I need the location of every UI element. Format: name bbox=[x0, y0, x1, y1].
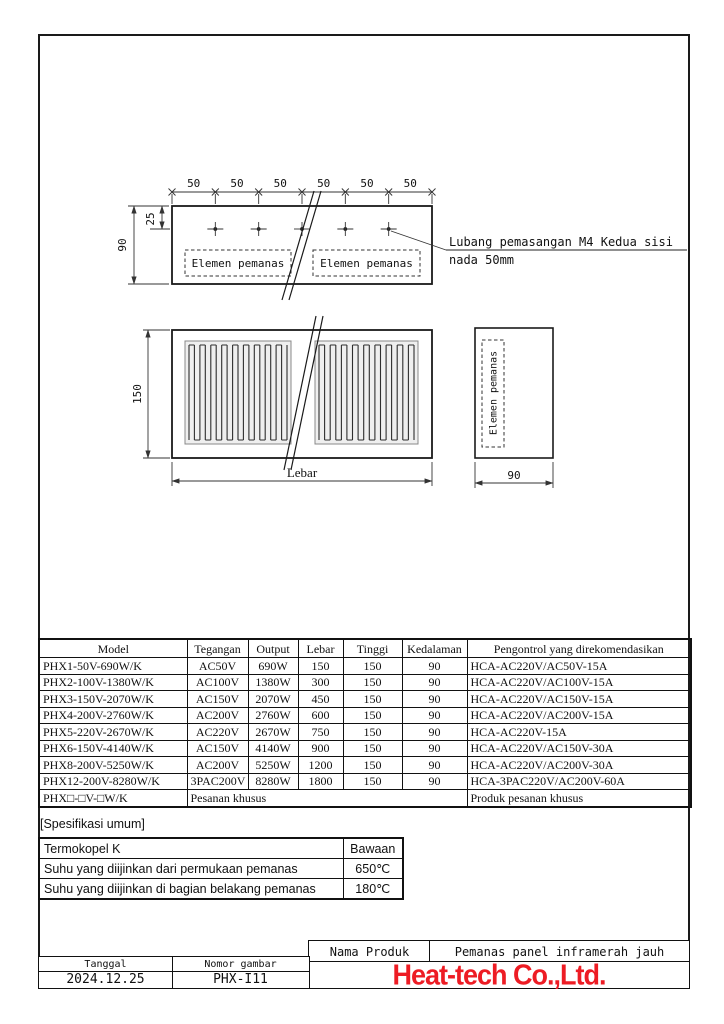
table-row: PHX1-50V-690W/KAC50V690W15015090HCA-AC22… bbox=[39, 658, 691, 675]
dim-label-90-top: 90 bbox=[116, 238, 129, 251]
table-cell: 90 bbox=[402, 691, 467, 708]
table-row: PHX5-220V-2670W/KAC220V2670W75015090HCA-… bbox=[39, 724, 691, 741]
annotation-line2: nada 50mm bbox=[449, 253, 514, 267]
table-cell: 2760W bbox=[248, 707, 298, 724]
table-cell: 8280W bbox=[248, 773, 298, 790]
spec-label: Termokopel K bbox=[39, 838, 343, 859]
column-header: Pengontrol yang direkomendasikan bbox=[467, 639, 691, 658]
table-cell: 90 bbox=[402, 757, 467, 774]
drawing-number-value: PHX-I11 bbox=[172, 971, 310, 989]
header-row: ModelTeganganOutputLebarTinggiKedalamanP… bbox=[39, 639, 691, 658]
table-cell: Produk pesanan khusus bbox=[467, 790, 691, 807]
table-cell: PHX4-200V-2760W/K bbox=[39, 707, 187, 724]
table-cell: PHX12-200V-8280W/K bbox=[39, 773, 187, 790]
table-cell: HCA-AC220V-15A bbox=[467, 724, 691, 741]
dim-label-50: 50 bbox=[404, 177, 417, 190]
table-cell: 300 bbox=[298, 674, 343, 691]
spec-row: Suhu yang diijinkan dari permukaan peman… bbox=[39, 859, 403, 879]
company-logo: Heat-tech Co.,Ltd. bbox=[308, 961, 690, 989]
table-row: PHX8-200V-5250W/KAC200V5250W120015090HCA… bbox=[39, 757, 691, 774]
datasheet-page: 50 50 50 50 50 50 25 90 Elemen pemanas E… bbox=[0, 0, 724, 1024]
table-cell: 1380W bbox=[248, 674, 298, 691]
column-header: Lebar bbox=[298, 639, 343, 658]
dim-label-50: 50 bbox=[317, 177, 330, 190]
spec-label: Suhu yang diijinkan di bagian belakang p… bbox=[39, 879, 343, 900]
table-cell: 90 bbox=[402, 658, 467, 675]
table-cell: PHX2-100V-1380W/K bbox=[39, 674, 187, 691]
model-table-head: ModelTeganganOutputLebarTinggiKedalamanP… bbox=[39, 639, 691, 658]
table-cell: 150 bbox=[343, 674, 402, 691]
table-row: PHX6-150V-4140W/KAC150V4140W90015090HCA-… bbox=[39, 740, 691, 757]
dim-label-90-side: 90 bbox=[507, 469, 520, 482]
dim-150-lines bbox=[143, 330, 170, 458]
side-view-outline bbox=[475, 328, 553, 458]
column-header: Model bbox=[39, 639, 187, 658]
table-cell: PHX6-150V-4140W/K bbox=[39, 740, 187, 757]
dim-label-25: 25 bbox=[144, 212, 157, 225]
spec-value: 180℃ bbox=[343, 879, 403, 900]
table-cell: 150 bbox=[343, 691, 402, 708]
table-cell: 90 bbox=[402, 707, 467, 724]
table-cell: 4140W bbox=[248, 740, 298, 757]
spec-table-body: Termokopel KBawaanSuhu yang diijinkan da… bbox=[39, 838, 403, 899]
table-cell: 90 bbox=[402, 773, 467, 790]
top-view-outline bbox=[172, 206, 432, 284]
company-logo-text: Heat-tech Co.,Ltd. bbox=[392, 959, 605, 992]
model-table-body: PHX1-50V-690W/KAC50V690W15015090HCA-AC22… bbox=[39, 658, 691, 807]
dim-ticks bbox=[169, 189, 436, 205]
table-cell: 600 bbox=[298, 707, 343, 724]
table-cell: 450 bbox=[298, 691, 343, 708]
table-cell: 5250W bbox=[248, 757, 298, 774]
element-label: Elemen pemanas bbox=[320, 257, 413, 270]
dim-label-50: 50 bbox=[360, 177, 373, 190]
table-cell: AC200V bbox=[187, 757, 248, 774]
column-header: Output bbox=[248, 639, 298, 658]
table-cell: AC150V bbox=[187, 740, 248, 757]
date-value: 2024.12.25 bbox=[38, 971, 173, 989]
spec-value: Bawaan bbox=[343, 838, 403, 859]
table-row: PHX3-150V-2070W/KAC150V2070W45015090HCA-… bbox=[39, 691, 691, 708]
column-header: Tinggi bbox=[343, 639, 402, 658]
spec-label: Suhu yang diijinkan dari permukaan peman… bbox=[39, 859, 343, 879]
column-header: Kedalaman bbox=[402, 639, 467, 658]
spec-title: [Spesifikasi umum] bbox=[40, 817, 145, 831]
table-cell: 150 bbox=[343, 707, 402, 724]
spec-row: Termokopel KBawaan bbox=[39, 838, 403, 859]
table-cell: PHX5-220V-2670W/K bbox=[39, 724, 187, 741]
table-cell: AC220V bbox=[187, 724, 248, 741]
table-row-custom: PHX□-□V-□W/KPesanan khususProduk pesanan… bbox=[39, 790, 691, 807]
table-cell: 150 bbox=[343, 724, 402, 741]
table-cell: PHX□-□V-□W/K bbox=[39, 790, 187, 807]
dim-label-lebar: Lebar bbox=[287, 465, 318, 480]
table-cell: 90 bbox=[402, 724, 467, 741]
table-cell: HCA-AC220V/AC150V-30A bbox=[467, 740, 691, 757]
annotation-line1: Lubang pemasangan M4 Kedua sisi bbox=[449, 235, 673, 249]
table-cell: 1800 bbox=[298, 773, 343, 790]
table-cell: 2070W bbox=[248, 691, 298, 708]
spec-table: Termokopel KBawaanSuhu yang diijinkan da… bbox=[38, 837, 404, 900]
table-cell: 150 bbox=[343, 740, 402, 757]
table-cell: 750 bbox=[298, 724, 343, 741]
table-row: PHX12-200V-8280W/K3PAC200V8280W180015090… bbox=[39, 773, 691, 790]
table-cell: 150 bbox=[343, 658, 402, 675]
table-cell: 150 bbox=[298, 658, 343, 675]
table-cell: 90 bbox=[402, 740, 467, 757]
table-cell: 3PAC200V bbox=[187, 773, 248, 790]
table-cell: AC150V bbox=[187, 691, 248, 708]
dim-label-150: 150 bbox=[131, 384, 144, 404]
table-cell: HCA-AC220V/AC200V-15A bbox=[467, 707, 691, 724]
table-cell: 90 bbox=[402, 674, 467, 691]
spec-row: Suhu yang diijinkan di bagian belakang p… bbox=[39, 879, 403, 900]
model-table: ModelTeganganOutputLebarTinggiKedalamanP… bbox=[38, 638, 692, 808]
table-cell: 150 bbox=[343, 773, 402, 790]
table-cell: HCA-AC220V/AC200V-30A bbox=[467, 757, 691, 774]
dim-label-50: 50 bbox=[187, 177, 200, 190]
table-cell: 1200 bbox=[298, 757, 343, 774]
dim-50-labels: 50 50 50 50 50 50 bbox=[187, 177, 417, 190]
table-cell: PHX1-50V-690W/K bbox=[39, 658, 187, 675]
table-cell: 690W bbox=[248, 658, 298, 675]
element-label: Elemen pemanas bbox=[192, 257, 285, 270]
table-cell: AC100V bbox=[187, 674, 248, 691]
dim-label-50: 50 bbox=[230, 177, 243, 190]
technical-drawing: 50 50 50 50 50 50 25 90 Elemen pemanas E… bbox=[0, 0, 724, 560]
table-cell: PHX8-200V-5250W/K bbox=[39, 757, 187, 774]
element-label-side: Elemen pemanas bbox=[489, 351, 500, 435]
table-cell: 900 bbox=[298, 740, 343, 757]
table-cell: 150 bbox=[343, 757, 402, 774]
table-cell: HCA-AC220V/AC50V-15A bbox=[467, 658, 691, 675]
table-cell: PHX3-150V-2070W/K bbox=[39, 691, 187, 708]
dim-label-50: 50 bbox=[274, 177, 287, 190]
table-row: PHX4-200V-2760W/KAC200V2760W60015090HCA-… bbox=[39, 707, 691, 724]
table-cell: AC200V bbox=[187, 707, 248, 724]
spec-value: 650℃ bbox=[343, 859, 403, 879]
table-cell: 2670W bbox=[248, 724, 298, 741]
column-header: Tegangan bbox=[187, 639, 248, 658]
table-cell: HCA-AC220V/AC150V-15A bbox=[467, 691, 691, 708]
table-cell: HCA-AC220V/AC100V-15A bbox=[467, 674, 691, 691]
table-cell: AC50V bbox=[187, 658, 248, 675]
table-cell: Pesanan khusus bbox=[187, 790, 467, 807]
table-row: PHX2-100V-1380W/KAC100V1380W30015090HCA-… bbox=[39, 674, 691, 691]
table-cell: HCA-3PAC220V/AC200V-60A bbox=[467, 773, 691, 790]
